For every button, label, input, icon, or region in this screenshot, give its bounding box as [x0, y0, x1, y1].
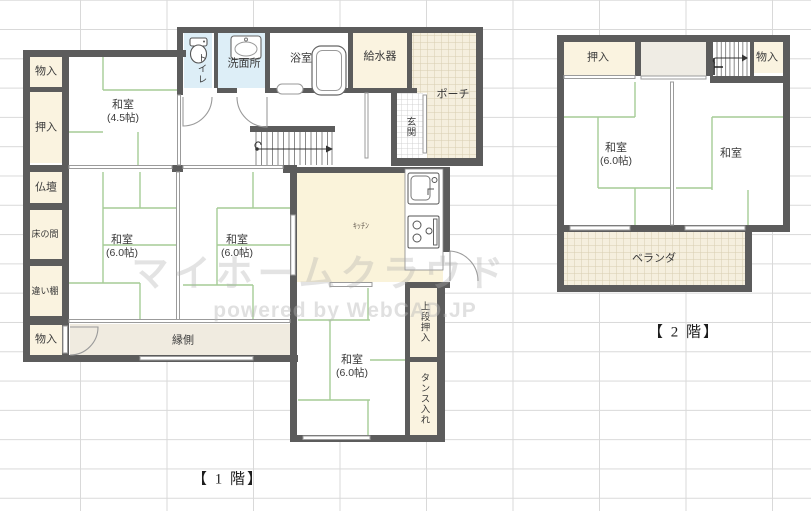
label-2f-storage: 物入 — [756, 52, 778, 65]
kitchen-sink-icon — [408, 173, 439, 204]
label-genkan: 玄関 — [404, 117, 415, 138]
label-tokonoma: 床の間 — [31, 229, 58, 239]
label-veranda: ベランダ — [632, 253, 676, 266]
label-shelf: 違い棚 — [31, 286, 58, 296]
label-altar: 仏壇 — [35, 182, 57, 195]
first-floor-title: 【 1 階】 — [192, 468, 264, 489]
watermark-credit: powered by WebCAD.JP — [213, 299, 477, 323]
watermark-brand: マイホームクラウド — [132, 243, 509, 297]
label-toilet: トイレ — [195, 53, 206, 85]
label-storage-top: 物入 — [35, 66, 57, 79]
room-label-washitsu-45: 和室 (4.5帖) — [107, 99, 139, 125]
label-closet: 押入 — [35, 122, 57, 135]
label-2f-closet: 押入 — [587, 52, 609, 65]
label-water-heater: 給水器 — [364, 51, 397, 64]
label-bath: 浴室 — [290, 53, 312, 66]
label-washroom: 洗面所 — [228, 58, 261, 71]
second-floor-title: 【 2 階】 — [648, 321, 720, 342]
room-label-washitsu-60-south: 和室 (6.0帖) — [336, 354, 368, 380]
label-kitchen: ｷｯﾁﾝ — [353, 221, 369, 230]
washbasin-icon — [231, 36, 261, 59]
label-storage-bottom: 物入 — [35, 334, 57, 347]
label-tansu: タンス入れ — [418, 373, 429, 426]
label-engawa: 縁側 — [172, 335, 194, 348]
room-label-2f-washitsu: 和室 — [720, 148, 742, 161]
label-porch: ポーチ — [437, 89, 470, 102]
room-label-2f-washitsu-60: 和室 (6.0帖) — [600, 142, 632, 168]
staircase-first-floor — [250, 132, 335, 165]
floorplan-canvas: 物入 押入 仏壇 床の間 違い棚 物入 和室 (4.5帖) トイレ 洗面所 浴室… — [0, 0, 811, 511]
staircase-second-floor — [713, 42, 750, 76]
